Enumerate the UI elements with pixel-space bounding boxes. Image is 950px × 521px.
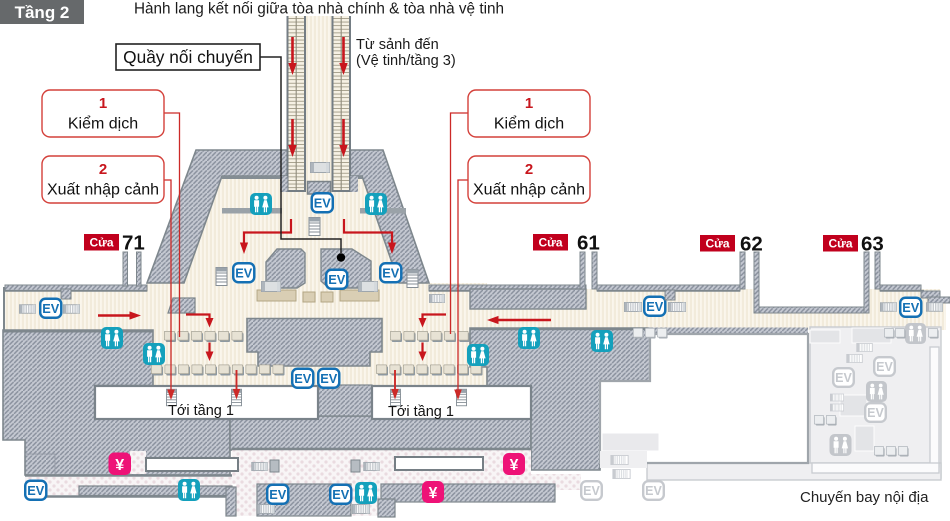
svg-text:Cửa: Cửa [828,237,852,251]
svg-text:71: 71 [122,232,145,255]
svg-text:(Vệ tinh/tầng 3): (Vệ tinh/tầng 3) [356,53,456,69]
svg-text:Tầng 2: Tầng 2 [15,3,70,22]
svg-text:Hành lang kết nối giữa tòa nhà: Hành lang kết nối giữa tòa nhà chính & t… [134,1,504,18]
svg-text:62: 62 [740,233,763,256]
svg-text:61: 61 [577,232,600,255]
svg-text:Quầy nối chuyến: Quầy nối chuyến [123,47,253,67]
svg-text:Kiểm dịch: Kiểm dịch [68,115,138,133]
svg-text:Tới tầng 1: Tới tầng 1 [388,404,454,420]
svg-text:Tới tầng 1: Tới tầng 1 [168,403,234,419]
svg-text:1: 1 [99,95,107,112]
svg-text:Cửa: Cửa [538,236,562,250]
svg-text:Xuất nhập cảnh: Xuất nhập cảnh [473,182,585,199]
svg-text:Cửa: Cửa [89,236,113,250]
svg-text:2: 2 [99,161,107,178]
svg-text:Cửa: Cửa [705,237,729,251]
svg-text:1: 1 [525,95,533,112]
svg-text:2: 2 [525,161,533,178]
svg-text:Kiểm dịch: Kiểm dịch [494,115,564,133]
svg-text:Xuất nhập cảnh: Xuất nhập cảnh [47,182,159,199]
svg-text:Chuyến bay nội địa: Chuyến bay nội địa [800,489,929,506]
svg-text:63: 63 [861,233,884,256]
svg-text:Từ sảnh đến: Từ sảnh đến [356,37,439,53]
